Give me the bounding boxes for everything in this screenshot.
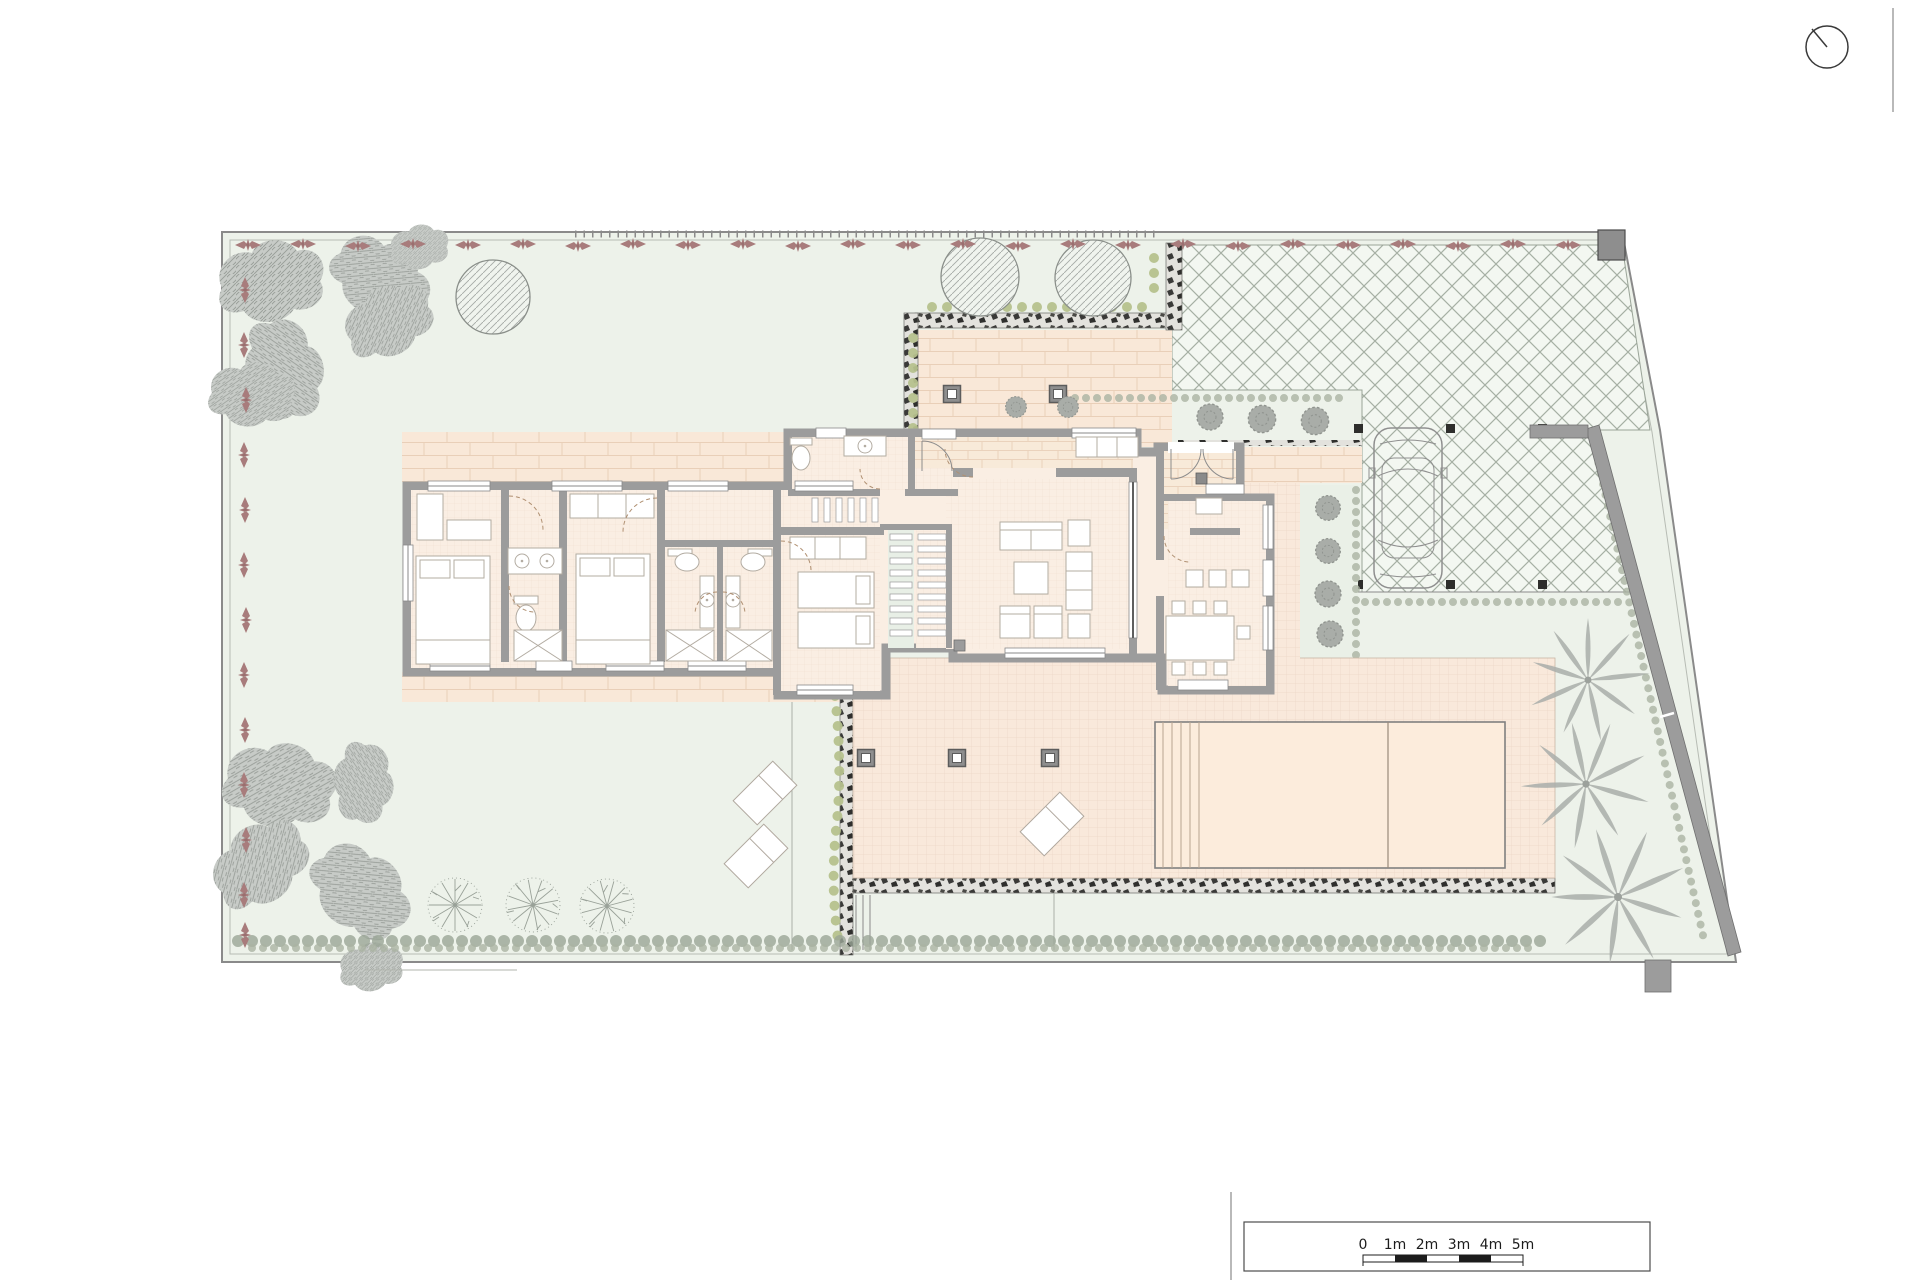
kitchen-island-unit	[1186, 570, 1203, 587]
garden-light	[858, 750, 875, 767]
dining-table	[1166, 616, 1234, 660]
plan-sheet: 0 1m 2m 3m 4m 5m	[0, 0, 1920, 1280]
scale-label-5m: 5m	[1512, 1237, 1535, 1253]
scale-bar: 0 1m 2m 3m 4m 5m	[1244, 1222, 1650, 1271]
scale-label-0: 0	[1359, 1237, 1368, 1253]
bedroom-3	[790, 537, 874, 648]
north-indicator	[1806, 26, 1848, 68]
scale-label-3m: 3m	[1448, 1237, 1471, 1253]
kitchen-island-unit	[1232, 570, 1249, 587]
scale-label-2m: 2m	[1416, 1237, 1439, 1253]
bedroom-1	[416, 494, 491, 664]
garden-light	[949, 750, 966, 767]
swimming-pool	[1155, 722, 1505, 868]
kitchen-island-unit	[1209, 570, 1226, 587]
garden-light	[1042, 750, 1059, 767]
scale-label-4m: 4m	[1480, 1237, 1503, 1253]
scale-label-1m: 1m	[1384, 1237, 1407, 1253]
hall-sideboard	[1076, 437, 1138, 457]
compass-needle-icon	[1812, 29, 1827, 47]
gate-post	[1598, 230, 1625, 260]
garden-light	[944, 386, 961, 403]
living-room	[1000, 520, 1092, 638]
floor-plan-canvas: 0 1m 2m 3m 4m 5m	[0, 0, 1920, 1280]
